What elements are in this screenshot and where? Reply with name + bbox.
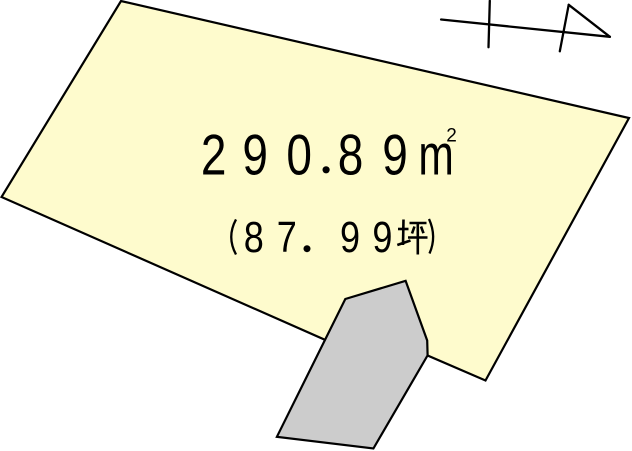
svg-text:8: 8 — [338, 124, 364, 188]
svg-text:2: 2 — [446, 126, 457, 147]
svg-text:9: 9 — [242, 124, 268, 188]
svg-text:9: 9 — [340, 213, 360, 262]
svg-text:7: 7 — [277, 213, 297, 262]
svg-text:0: 0 — [286, 124, 312, 188]
svg-text:8: 8 — [244, 213, 264, 262]
svg-text:2: 2 — [201, 124, 227, 188]
svg-text:9: 9 — [372, 213, 392, 262]
svg-text:9: 9 — [382, 124, 408, 188]
